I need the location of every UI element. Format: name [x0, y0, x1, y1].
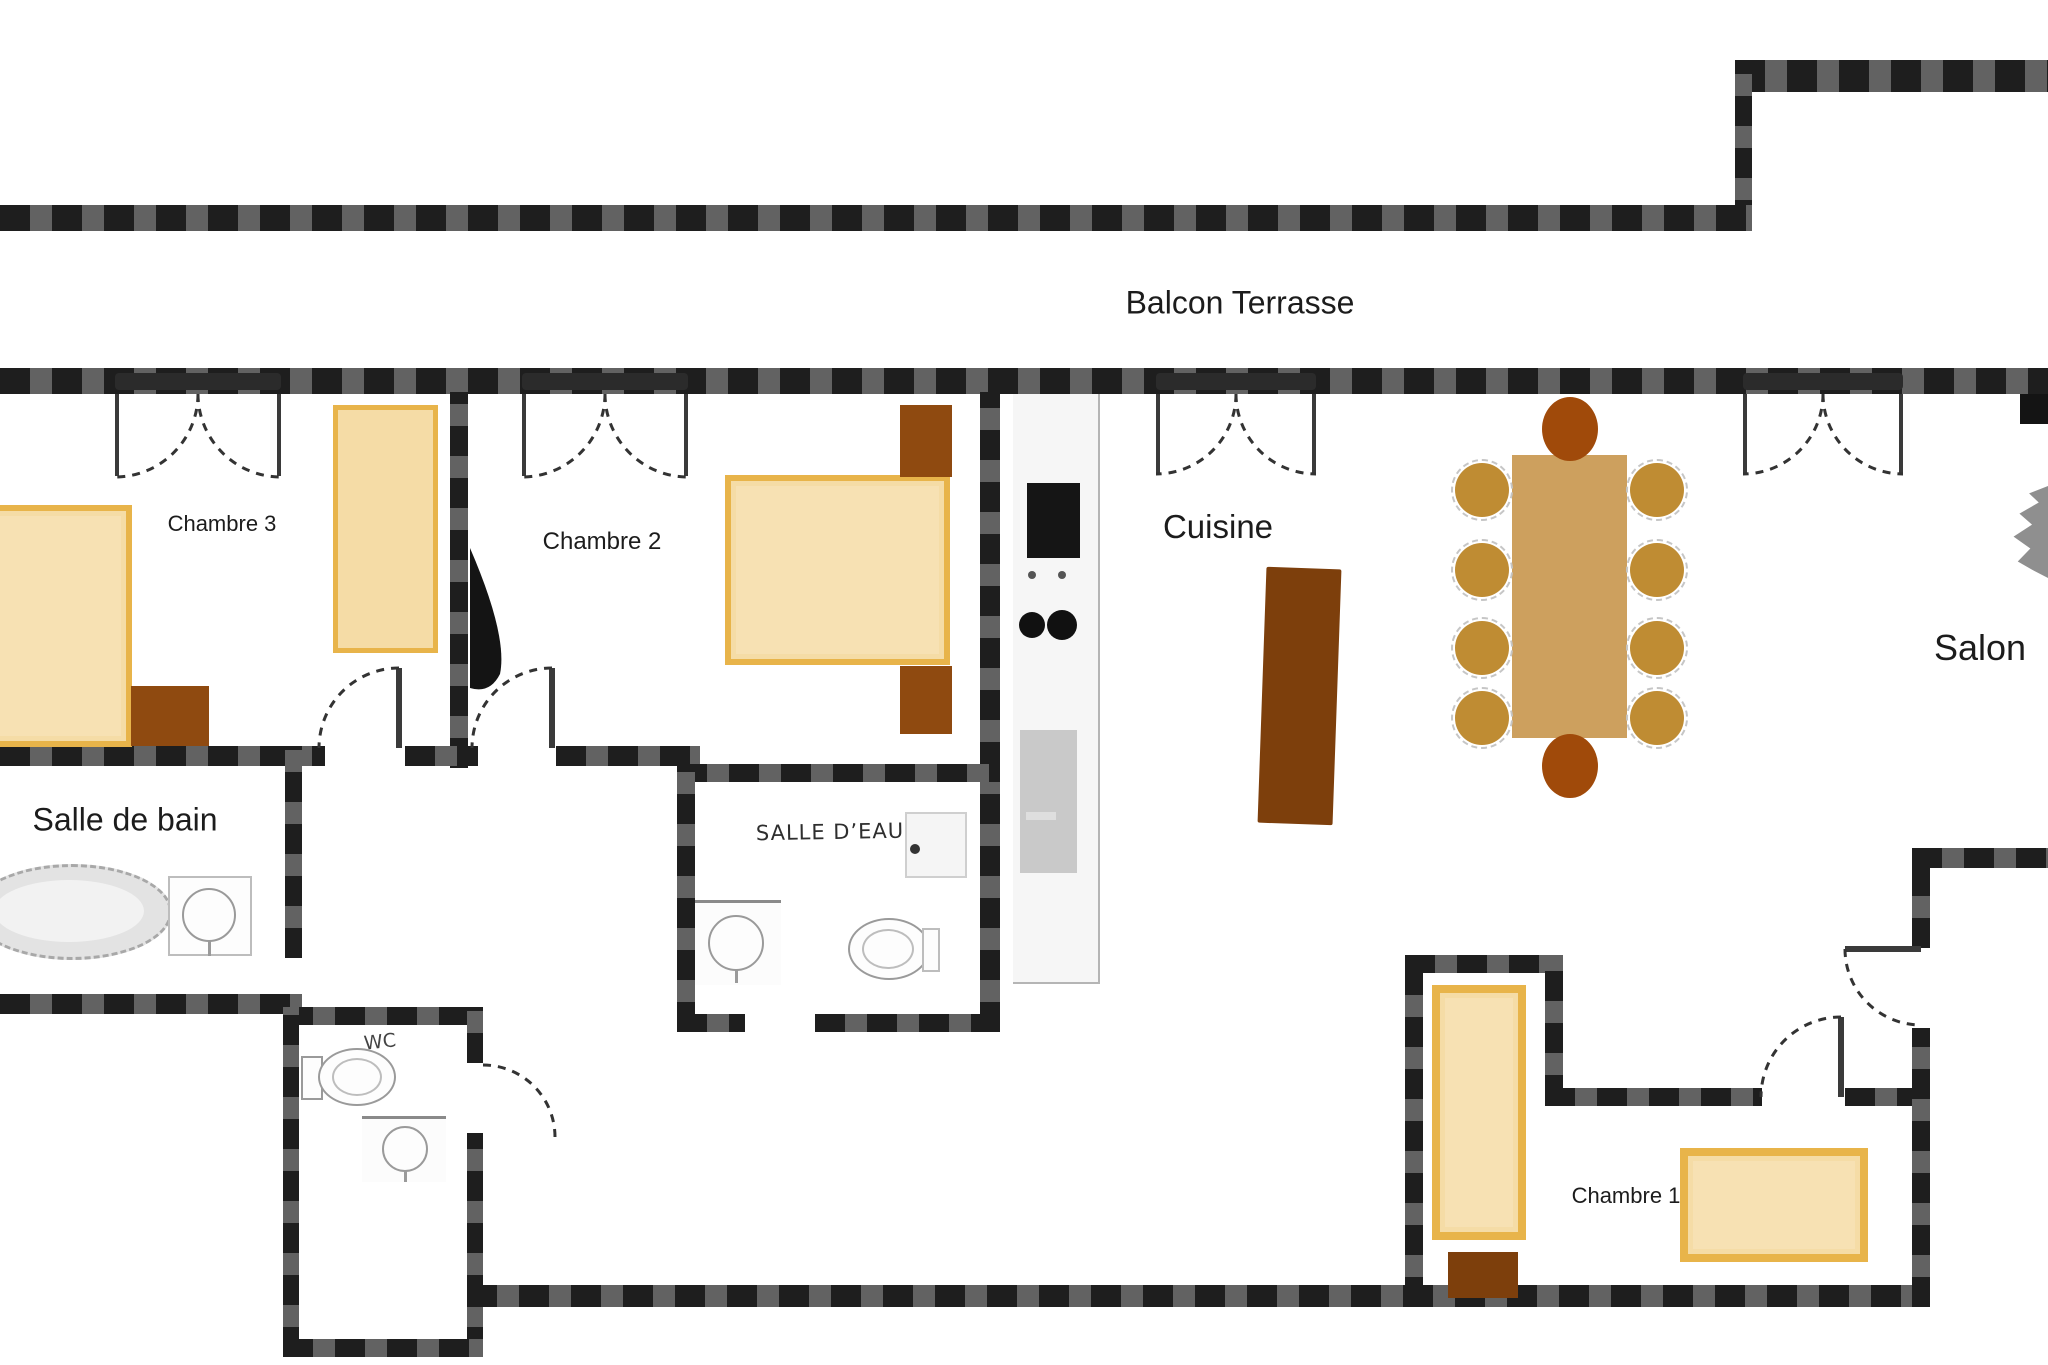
dining-chair-head — [1542, 397, 1598, 461]
window-rail — [684, 394, 688, 476]
window-arc — [1823, 394, 1903, 474]
mattress — [1693, 1161, 1855, 1249]
dining-chair — [1455, 543, 1509, 597]
dining-chair — [1455, 463, 1509, 517]
nightstand-chambre1 — [1448, 1252, 1518, 1298]
burner-icon — [1019, 612, 1045, 638]
wall-wc-right — [467, 1133, 483, 1357]
wall-wc-left — [283, 1007, 299, 1357]
window-arc — [605, 394, 688, 477]
wardrobe-chambre3 — [333, 405, 438, 653]
room-label-wc: WC — [363, 1029, 397, 1054]
window-rail — [115, 394, 119, 476]
bed-chambre1-horizontal — [1680, 1148, 1868, 1262]
dining-chair — [1630, 691, 1684, 745]
nightstand-chambre3 — [131, 686, 209, 746]
dining-chair-head — [1542, 734, 1598, 798]
washbasin-tap — [208, 941, 211, 956]
room-label-chambre3: Chambre 3 — [168, 511, 277, 537]
wall-corridor-top — [556, 746, 700, 766]
shower-drain-icon — [910, 844, 920, 854]
door-arc-wc — [483, 1065, 555, 1137]
window-arc — [1156, 394, 1236, 474]
window-arc — [522, 394, 605, 477]
room-label-salle-deau: SALLE D’EAU — [756, 819, 905, 846]
kitchen-sink — [1020, 730, 1077, 873]
french-window-chambre3-icon — [115, 373, 281, 390]
wall-salle-deau-bottom — [677, 1014, 745, 1032]
window-rail — [522, 394, 526, 476]
burner-icon — [1047, 610, 1077, 640]
room-label-cuisine: Cuisine — [1163, 508, 1273, 546]
toilet-tank — [922, 928, 940, 972]
wall-salle-de-bain-right — [285, 746, 302, 958]
window-rail — [277, 394, 281, 476]
mattress — [1445, 998, 1513, 1227]
french-window-salon-icon — [1743, 373, 1903, 390]
window-rail — [1156, 394, 1160, 474]
french-window-chambre2-icon — [522, 373, 688, 390]
wall-balcony-upper — [1735, 60, 2048, 92]
toilet-bowl-inner — [332, 1058, 382, 1096]
wall-stub-top-right — [2020, 394, 2048, 424]
toilet-bowl-inner — [862, 929, 914, 969]
door-swing-chambre2-left — [470, 548, 501, 689]
door-leaf-chambre1-inner — [1838, 1017, 1844, 1097]
plant-icon — [2006, 486, 2048, 578]
wall-corridor-top — [405, 746, 478, 766]
window-rail — [1743, 394, 1747, 474]
nightstand-chambre2-bottom — [900, 666, 952, 734]
mattress — [736, 486, 939, 654]
oven-icon — [1027, 483, 1080, 558]
dining-chair — [1630, 621, 1684, 675]
wall-balcony-lower — [0, 205, 1752, 231]
room-label-balcon: Balcon Terrasse — [1126, 285, 1355, 322]
door-leaf-chambre2 — [549, 668, 555, 748]
door-leaf-chambre1-right — [1845, 946, 1921, 952]
wall-apartment-top — [0, 368, 2048, 394]
kitchen-island — [1258, 567, 1342, 825]
mattress — [0, 516, 121, 736]
stove-knob-icon — [1058, 571, 1066, 579]
wall-corridor-top — [0, 746, 325, 766]
bed-chambre1-vertical — [1432, 985, 1526, 1240]
room-label-salle-de-bain: Salle de bain — [32, 802, 217, 839]
dining-chair — [1630, 463, 1684, 517]
wall-salle-de-bain-bottom — [0, 994, 302, 1014]
washbasin-tap — [404, 1170, 407, 1182]
window-arc — [1236, 394, 1316, 474]
window-rail — [1899, 394, 1903, 474]
wall-wc-right — [467, 1007, 483, 1063]
door-leaf-chambre3 — [396, 668, 402, 748]
washbasin-bowl — [182, 888, 236, 942]
wall-salle-deau-left — [677, 764, 695, 1032]
nightstand-chambre2-top — [900, 405, 952, 477]
wall-salle-deau-top — [677, 764, 1000, 782]
dining-chair — [1455, 691, 1509, 745]
wall-salle-deau-bottom — [815, 1014, 1000, 1032]
door-arc-chambre2 — [472, 668, 552, 748]
wall-salon-bottom-right — [1912, 848, 2048, 868]
wall-chambre1-right — [1912, 1028, 1930, 1307]
window-arc — [198, 394, 281, 477]
bed-chambre2 — [725, 475, 950, 665]
floor-plan: Balcon Terrasse — [0, 0, 2048, 1365]
wall-chambre1-top — [1405, 955, 1560, 973]
washbasin-bowl — [708, 915, 764, 971]
wall-chambre3-chambre2 — [450, 392, 468, 768]
washbasin-bowl — [382, 1126, 428, 1172]
room-label-chambre2: Chambre 2 — [543, 528, 662, 556]
french-window-cuisine-icon — [1156, 373, 1316, 390]
window-arc — [1743, 394, 1823, 474]
bed-chambre3 — [0, 505, 132, 747]
dining-table — [1512, 455, 1627, 738]
window-arc — [115, 394, 198, 477]
room-label-chambre1: Chambre 1 — [1572, 1183, 1681, 1209]
washbasin-tap — [735, 969, 738, 983]
door-arc-chambre3 — [319, 668, 399, 748]
wall-chambre1-step — [1545, 955, 1563, 1105]
door-arc-chambre1-right — [1845, 949, 1921, 1025]
wall-wc-bottom — [283, 1339, 483, 1357]
wall-chambre1-inner — [1545, 1088, 1762, 1106]
window-rail — [1312, 394, 1316, 474]
wall-bottom-main — [467, 1285, 1930, 1307]
wall-chambre1-left — [1405, 955, 1423, 1307]
dining-chair — [1630, 543, 1684, 597]
room-label-salon: Salon — [1934, 627, 2026, 669]
bathtub-inner — [0, 880, 144, 942]
kitchen-sink-detail — [1026, 812, 1056, 820]
dining-chair — [1455, 621, 1509, 675]
wall-kitchen-left — [980, 392, 1000, 1032]
wall-wc-top — [283, 1007, 483, 1025]
door-arc-chambre1-inner — [1761, 1017, 1841, 1097]
stove-knob-icon — [1028, 571, 1036, 579]
